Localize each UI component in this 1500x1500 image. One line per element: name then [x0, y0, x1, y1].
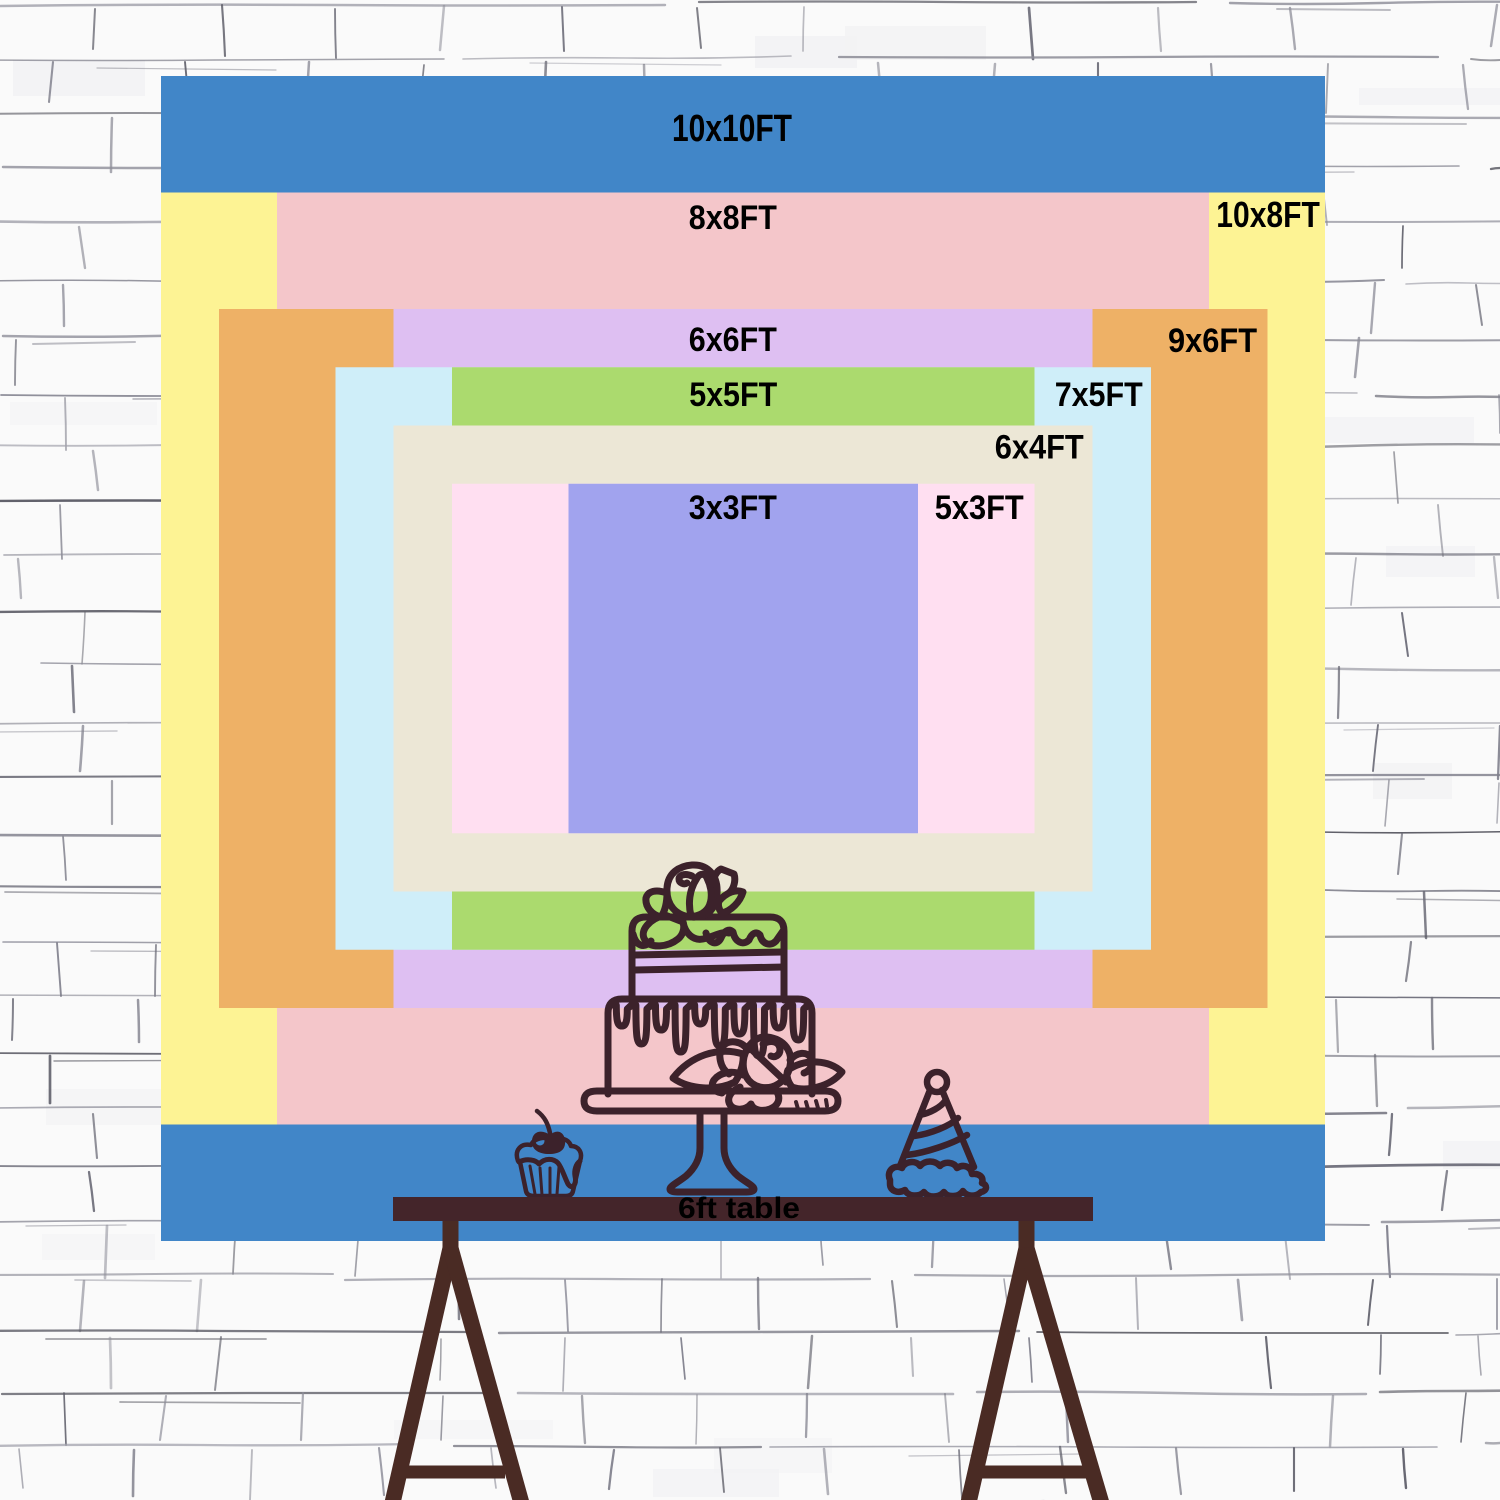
svg-text:8x8FT: 8x8FT [689, 199, 777, 237]
svg-text:9x6FT: 9x6FT [1168, 322, 1257, 360]
svg-text:6ft table: 6ft table [678, 1192, 800, 1225]
svg-text:7x5FT: 7x5FT [1055, 376, 1143, 414]
svg-text:5x3FT: 5x3FT [935, 489, 1024, 527]
svg-text:10x8FT: 10x8FT [1216, 194, 1320, 235]
svg-text:6x6FT: 6x6FT [689, 321, 777, 359]
svg-text:3x3FT: 3x3FT [689, 489, 777, 527]
svg-text:6x4FT: 6x4FT [995, 429, 1084, 467]
svg-text:5x5FT: 5x5FT [689, 376, 777, 414]
svg-text:10x10FT: 10x10FT [672, 108, 792, 150]
